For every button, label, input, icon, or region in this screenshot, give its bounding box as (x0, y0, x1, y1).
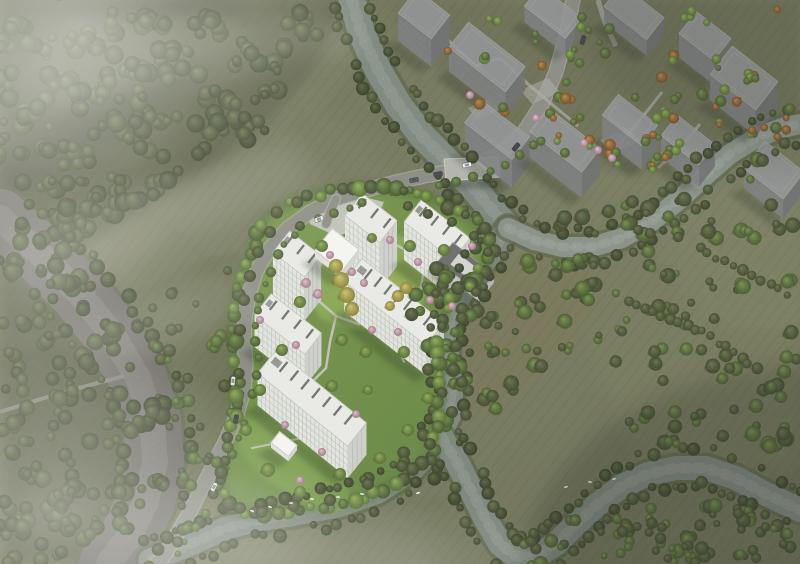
atmosphere-layer (0, 0, 800, 564)
render-canvas: Aerial architectural rendering of a rive… (0, 0, 800, 564)
aerial-architectural-rendering: Aerial architectural rendering of a rive… (0, 0, 800, 564)
color-cast (0, 0, 800, 564)
